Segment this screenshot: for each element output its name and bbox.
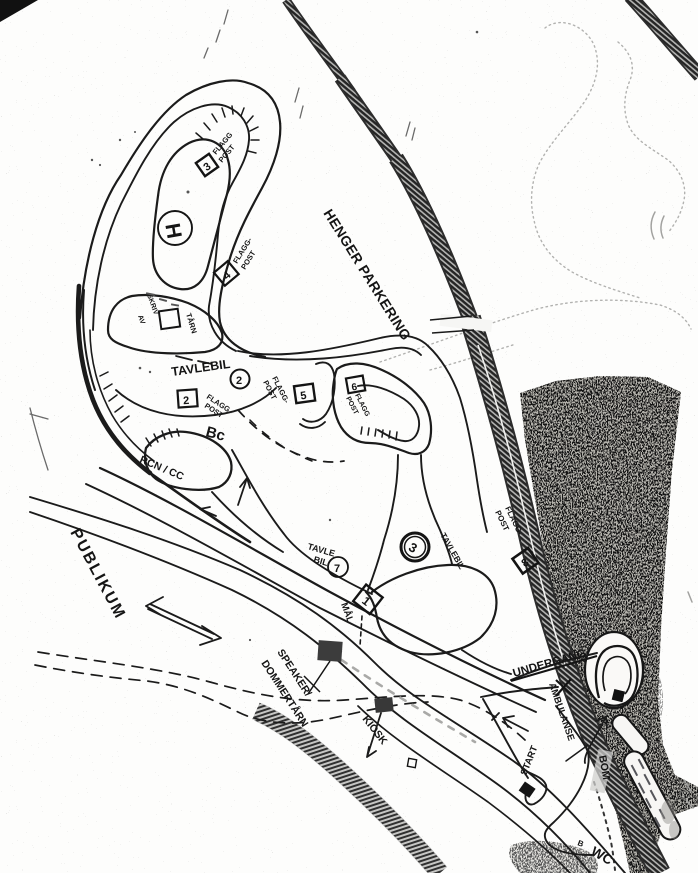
svg-text:2: 2 <box>183 395 190 407</box>
svg-text:2: 2 <box>236 375 242 387</box>
svg-text:7: 7 <box>334 563 340 575</box>
